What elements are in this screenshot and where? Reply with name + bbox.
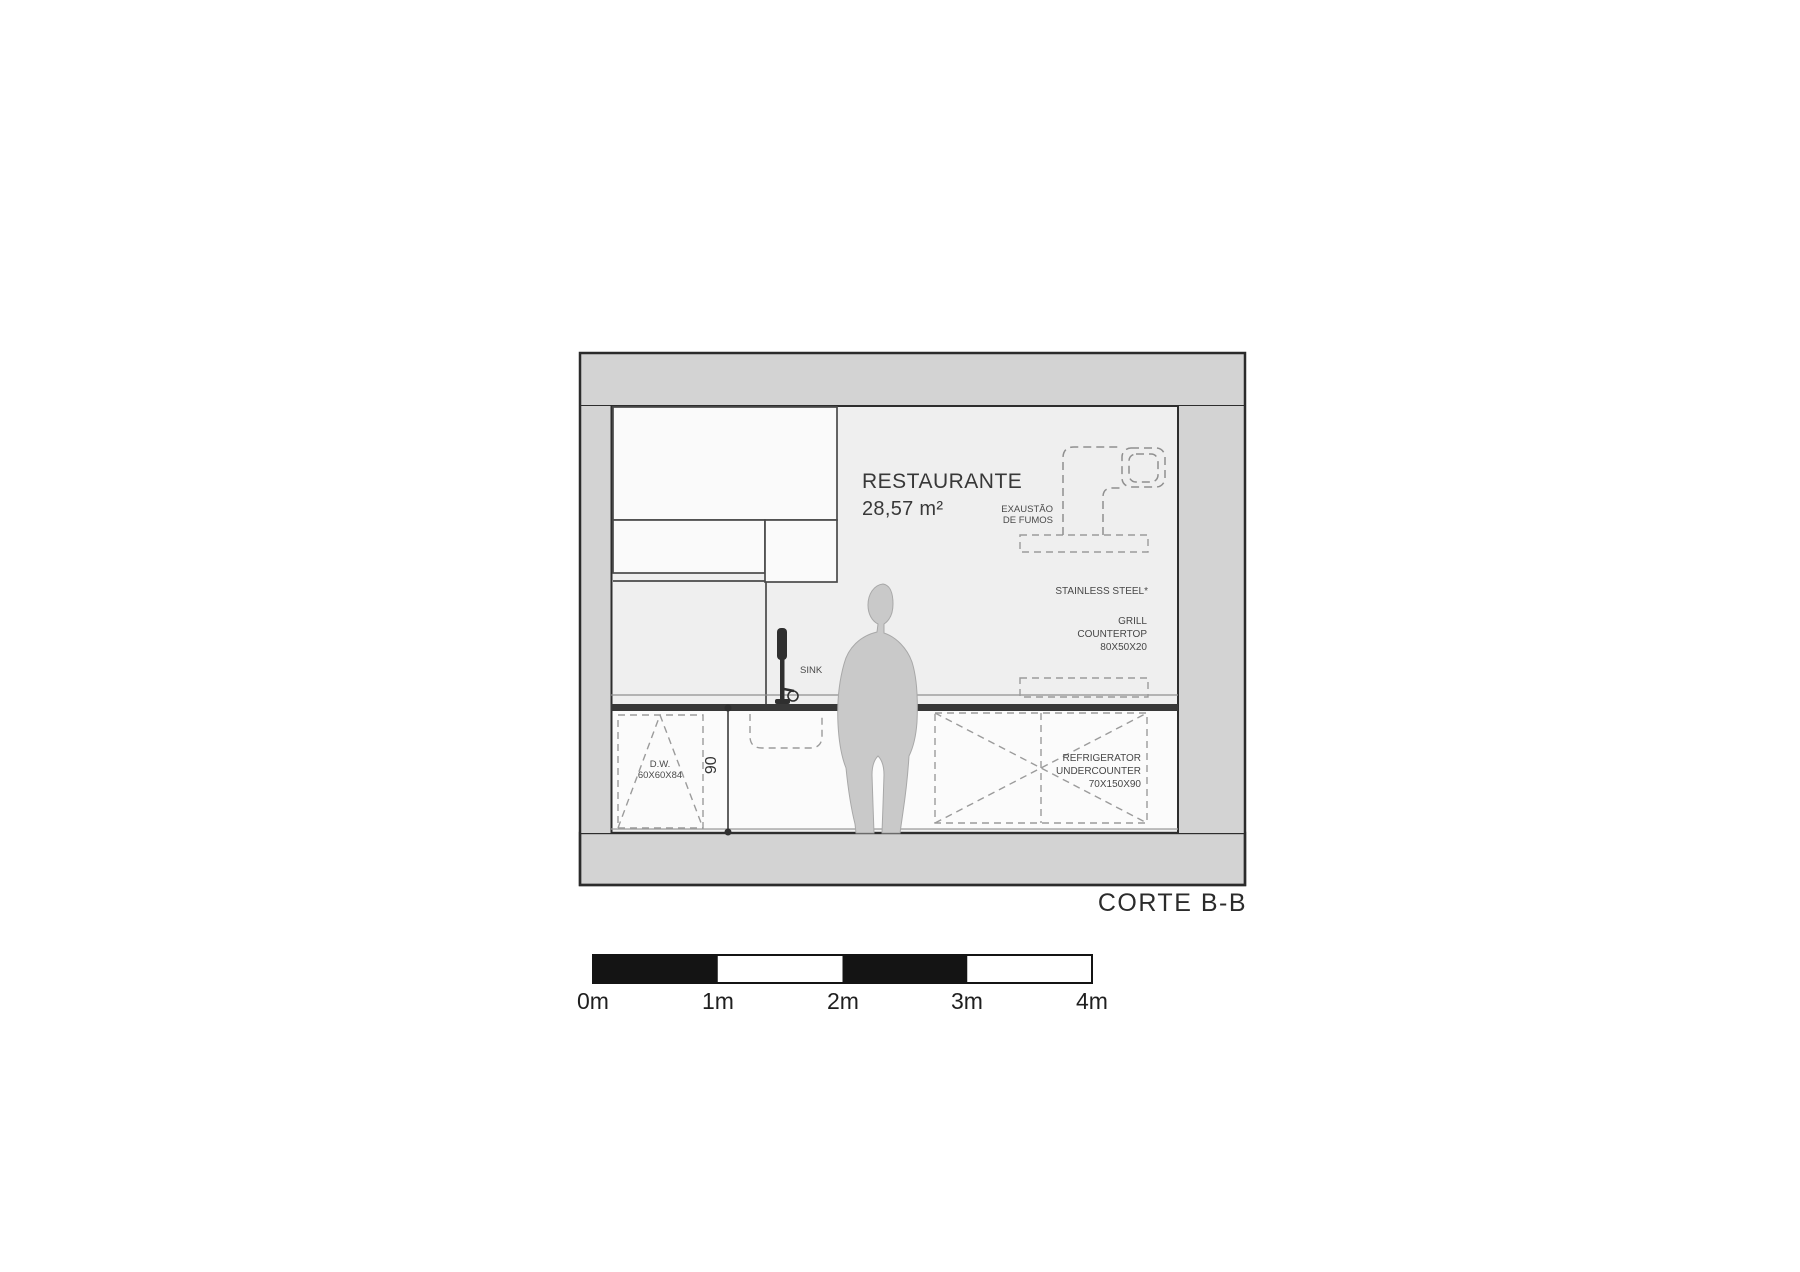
right-wall: [1178, 406, 1245, 833]
counter-height-dimension-label: 90: [703, 747, 721, 783]
sink-label: SINK: [800, 666, 822, 677]
ceiling-slab: [580, 353, 1245, 406]
grill-label-line3: 80X50X20: [1100, 642, 1147, 653]
dishwasher-label-line2: 60X60X84: [638, 770, 682, 781]
refrigerator-label-line2: UNDERCOUNTER: [1056, 766, 1141, 777]
dishwasher-label-line1: D.W.: [650, 759, 671, 770]
scale-label-0m: 0m: [563, 988, 623, 1014]
scale-label-2m: 2m: [813, 988, 873, 1014]
scale-bar: [593, 955, 1092, 983]
dishwasher-label: D.W.60X60X84: [610, 760, 710, 782]
stainless-steel-label: STAINLESS STEEL*: [1048, 586, 1148, 598]
grill-label-line2: COUNTERTOP: [1077, 629, 1147, 640]
scale-label-1m: 1m: [688, 988, 748, 1014]
room-area-label: 28,57 m²: [862, 498, 943, 521]
left-wall: [580, 406, 611, 833]
exhaust-label-line1: EXAUSTÃO: [1001, 504, 1053, 515]
scale-label-4m: 4m: [1062, 988, 1122, 1014]
refrigerator-label: REFRIGERATORUNDERCOUNTER70X150X90: [1021, 752, 1141, 791]
exhaust-label-line2: DE FUMOS: [1003, 515, 1053, 526]
page: RESTAURANTE 28,57 m² EXAUSTÃODE FUMOS ST…: [0, 0, 1800, 1272]
floor-slab: [580, 833, 1245, 885]
scale-label-3m: 3m: [937, 988, 997, 1014]
room-name-label: RESTAURANTE: [862, 470, 1022, 494]
refrigerator-label-line3: 70X150X90: [1089, 779, 1141, 790]
grill-countertop-label: GRILLCOUNTERTOP80X50X20: [1027, 615, 1147, 654]
section-drawing: [0, 0, 1800, 1272]
drawing-title: CORTE B-B: [1000, 889, 1247, 918]
exhaust-label: EXAUSTÃODE FUMOS: [995, 505, 1053, 527]
refrigerator-label-line1: REFRIGERATOR: [1062, 753, 1141, 764]
grill-label-line1: GRILL: [1118, 616, 1147, 627]
